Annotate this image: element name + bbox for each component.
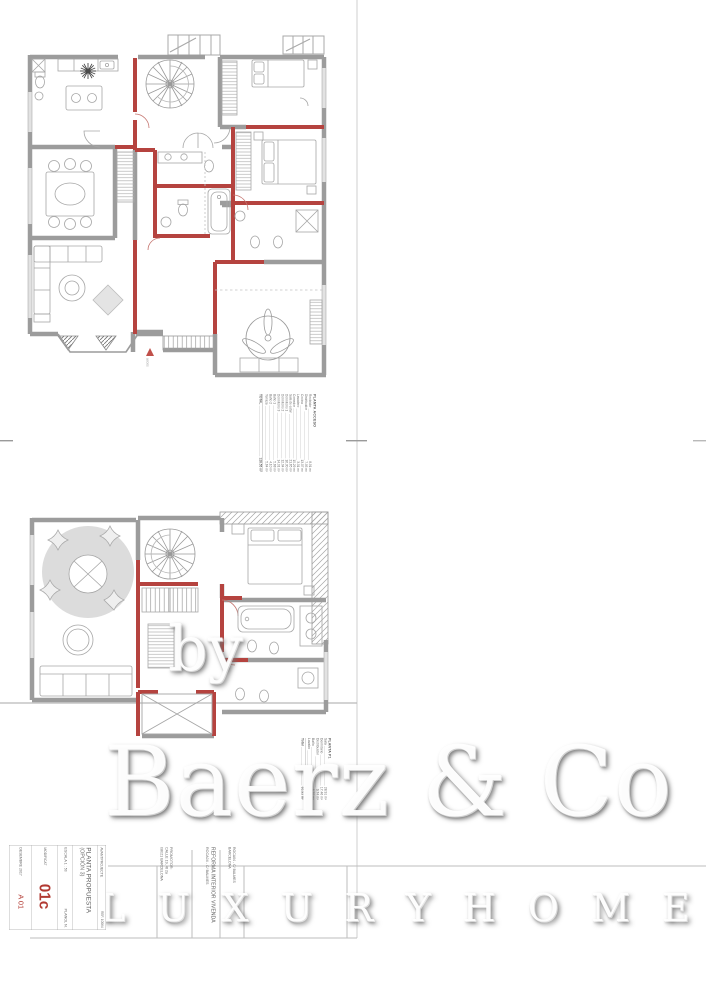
titleblock: AVANTPROJECTE REF. 10064 PLANTA PROPUEST…: [9, 845, 106, 930]
promoter-label: PROMOTOR:: [168, 847, 173, 932]
table-body: Sala28.91 m²Dormitorio17.46 m²Distribuid…: [307, 738, 328, 800]
plan-acceso: [30, 35, 326, 375]
wc: [35, 72, 45, 100]
table-row: Sala de estar21.65 m²: [288, 394, 292, 472]
table-row: Distribuidor9.74 m²: [315, 738, 319, 800]
balcony: [168, 35, 324, 55]
sheet-number-label: PLANOL N.: [63, 909, 67, 928]
walls-existing: [30, 55, 326, 375]
spiral-staircase: [146, 60, 194, 108]
access-label: accés: [141, 358, 149, 388]
sofa: [34, 246, 102, 322]
table-row: Dormitorio 116.30 m²: [284, 394, 288, 472]
project-type: AVANTPROJECTE: [100, 847, 104, 877]
sheet-code: 01c: [36, 884, 54, 910]
elevator-shaft: [142, 694, 212, 734]
spiral-staircase: [145, 529, 195, 579]
extractor-fan-icon: [80, 63, 96, 79]
promoter-line1: CALLE 19, 4t 2a: [164, 847, 169, 932]
living-room: [40, 526, 134, 696]
sheet-code-2: A 01: [16, 894, 25, 909]
access-arrow-icon: [146, 348, 154, 356]
table-row: Dormitorio 314.91 m²: [276, 394, 280, 472]
table-row: Lavabo3.12 m²: [307, 738, 311, 800]
area-table-p1: PLANTA P1 Sala28.91 m²Dormitorio17.46 m²…: [288, 738, 334, 800]
windows: [30, 68, 324, 345]
promoter-line2: 08021 BARCELONA: [159, 847, 164, 932]
project-name: REFORMA INTERIOR VIVENDA: [210, 847, 216, 932]
total-label: Total: [300, 738, 304, 746]
area-table-acceso: PLANTA ACCESO Recibidor8.91 m²Distribuid…: [233, 394, 319, 472]
table-row: Recibidor8.91 m²: [308, 394, 312, 472]
bathroom-3: [235, 210, 318, 248]
kitchen: [32, 59, 118, 110]
project-ref-block: ROCA04 - C/ BALMES BARCELONA: [224, 847, 236, 932]
sheet-subtitle: (OPCIÓN 3): [79, 847, 85, 876]
project-ref: REF. 10064: [100, 911, 104, 928]
sofa: [40, 666, 132, 696]
table-row: Dormitorio 212.04 m²: [280, 394, 284, 472]
laundry: [236, 668, 319, 702]
double-door: [84, 114, 248, 250]
bedroom-2: [254, 132, 316, 194]
table-row: Terraza5.64 m²: [264, 394, 268, 472]
project-ref-line: ROCA04 - C/ BALMES: [205, 847, 209, 932]
table-row: Baño 24.10 m²: [268, 394, 272, 472]
sheet-frame: [0, 0, 706, 938]
total-value: 65.93 m²: [300, 787, 304, 800]
dining-table: [46, 159, 94, 230]
wardrobes: [142, 588, 198, 668]
ceiling-fan: [241, 309, 296, 360]
table-row: Distribuidor7.95 m²: [304, 394, 308, 472]
entrance-steps: [146, 336, 215, 356]
sheet-title: PLANTA PROPUESTA: [85, 847, 92, 913]
bathrooms: [158, 152, 230, 236]
table-row: Dormitorio17.46 m²: [319, 738, 323, 800]
project-ref2-line1: ROCA04 - C/ BALMES: [231, 847, 236, 932]
total-value: 128.55 m²: [258, 458, 262, 472]
bathroom: [222, 606, 322, 665]
titleblock-lines: [30, 850, 706, 938]
project-ref2-line2: BARCELONA: [227, 847, 232, 932]
table-row: Lavadero3.01 m²: [296, 394, 300, 472]
bedroom-3: [215, 290, 324, 372]
table-body: Recibidor8.91 m²Distribuidor7.95 m²Cocin…: [264, 394, 311, 472]
scale-label: ESCALA 1 : 50: [63, 847, 67, 871]
bedroom-1: [252, 60, 317, 106]
total-label: TOTAL: [258, 394, 262, 404]
promoter-block: PROMOTOR: CALLE 19, 4t 2a 08021 BARCELON…: [159, 847, 173, 932]
bathtub: [238, 606, 294, 632]
bathtub: [208, 189, 230, 234]
table-title: PLANTA ACCESO: [312, 394, 317, 427]
table-row: Comedor15.29 m²: [292, 394, 296, 472]
sheet-date: DESEMBRE 2017: [19, 847, 23, 875]
modified-label: MODIFICAT: [43, 847, 47, 865]
coffee-table: [59, 275, 85, 301]
rug: [93, 285, 123, 315]
table-title: PLANTA P1: [327, 738, 331, 759]
drawing-sheet: PLANTA ACCESO Recibidor8.91 m²Distribuid…: [0, 0, 706, 1000]
project-name-block: REFORMA INTERIOR VIVENDA ROCA04 - C/ BAL…: [194, 847, 216, 932]
